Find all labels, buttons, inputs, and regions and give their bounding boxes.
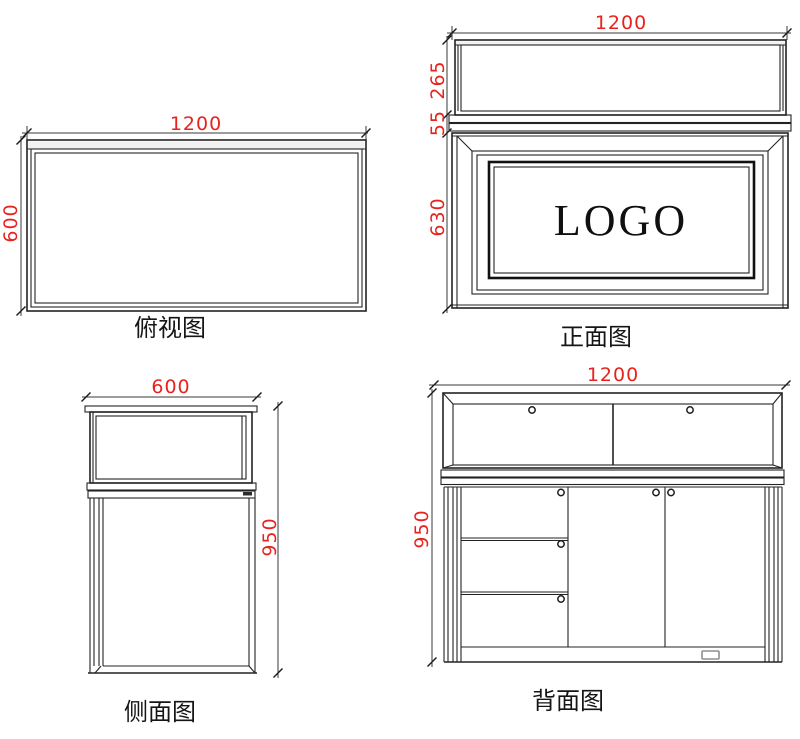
glass-case-outer <box>90 412 252 483</box>
counter-band-lower <box>441 478 784 485</box>
glass-case-cap-strip <box>456 42 785 45</box>
dim-text-back-height: 950 <box>411 509 433 548</box>
dim-text-top-depth: 600 <box>0 203 22 242</box>
drawer-knob-icon <box>558 489 564 495</box>
dim-text-side-depth: 600 <box>151 376 190 398</box>
top-view: 1200 600 俯视图 <box>0 113 371 342</box>
dim-text-side-height: 950 <box>259 517 281 556</box>
logo-text: LOGO <box>554 196 688 245</box>
drawer-stack <box>461 487 568 647</box>
view-label-top: 俯视图 <box>134 314 206 342</box>
front-cabinet: LOGO <box>452 133 788 308</box>
frame-bevel <box>773 393 782 404</box>
view-label-back: 背面图 <box>532 687 604 715</box>
view-label-front: 正面图 <box>560 323 632 351</box>
counter-band-upper <box>87 483 256 490</box>
back-glass-case <box>443 393 782 468</box>
finger-hole-icon <box>687 407 693 413</box>
view-label-side: 侧面图 <box>124 698 196 726</box>
front-view: 1200 265 55 630 <box>427 12 792 351</box>
door-knob-icon <box>653 489 659 495</box>
crown-bevel-left <box>457 136 472 151</box>
counter-band-lower <box>449 124 791 132</box>
door-knob-icon <box>668 489 674 495</box>
socket-icon <box>702 651 719 659</box>
glass-case-inner <box>461 45 780 111</box>
finger-hole-icon <box>529 407 535 413</box>
front-glass-case <box>455 40 786 115</box>
dim-text-front-glass-height: 265 <box>427 60 449 99</box>
counter-band-upper <box>441 470 784 477</box>
glass-frame-inner <box>35 153 358 303</box>
front-view-dimension-width: 1200 <box>447 12 792 40</box>
drawer-knob-icon <box>558 541 564 547</box>
plinth-bevel-right <box>249 666 255 673</box>
top-view-dimension-width: 1200 <box>22 113 371 140</box>
side-view-dimension-height: 950 <box>259 402 283 679</box>
dim-text-front-width: 1200 <box>595 12 647 34</box>
logo-panel: LOGO <box>489 162 754 278</box>
counter-band-lower <box>88 491 255 498</box>
counter-front-edge-strip <box>29 142 365 149</box>
back-counter-band <box>441 470 784 485</box>
top-view-outline <box>27 140 366 311</box>
top-view-dimension-depth: 600 <box>0 136 26 317</box>
counter-edge-dash <box>243 492 252 496</box>
dim-text-front-cabinet-height: 630 <box>427 197 449 236</box>
side-counter-band <box>87 483 256 498</box>
dim-text-back-width: 1200 <box>587 364 639 386</box>
plinth-bevel-left <box>95 666 101 673</box>
showcase-technical-drawing: 1200 600 俯视图 1200 <box>0 0 800 739</box>
side-view: 600 950 <box>82 376 283 726</box>
front-counter-band <box>449 115 791 131</box>
dim-text-top-width: 1200 <box>170 113 222 135</box>
front-view-dimension-heights: 265 55 630 <box>427 36 452 314</box>
back-view-dimension-height: 950 <box>411 389 437 668</box>
counter-band-upper <box>449 115 791 123</box>
side-glass-case <box>85 406 257 483</box>
back-cabinet <box>444 487 782 662</box>
side-cabinet <box>88 498 257 673</box>
crown-bevel-right <box>768 136 783 151</box>
back-view: 1200 950 <box>411 364 791 715</box>
glass-case-cap <box>85 406 257 412</box>
glass-frame-outer <box>31 149 362 307</box>
glass-case-outer <box>455 40 786 115</box>
drawer-knob-icon <box>558 596 564 602</box>
frame-bevel <box>443 393 453 404</box>
side-view-dimension-depth: 600 <box>82 376 262 402</box>
glass-case-inner <box>96 416 246 479</box>
back-view-dimension-width: 1200 <box>429 364 791 390</box>
door-pair <box>653 487 674 647</box>
dim-text-front-counter-thickness: 55 <box>427 110 449 136</box>
counter-top-outer-edge <box>27 140 366 311</box>
